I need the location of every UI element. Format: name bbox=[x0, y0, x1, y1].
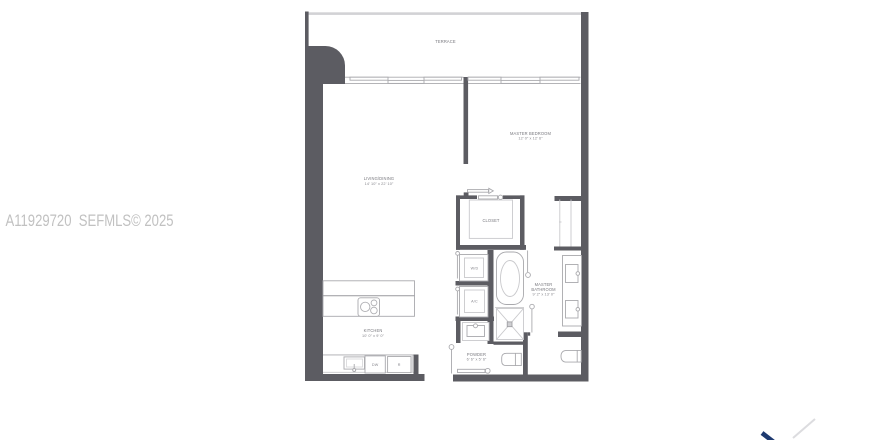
svg-text:A11929720 SEFMLS© 2025: A11929720 SEFMLS© 2025 bbox=[6, 211, 174, 230]
svg-text:10’ 0” x 9’ 0”: 10’ 0” x 9’ 0” bbox=[362, 334, 385, 338]
svg-text:POWDER: POWDER bbox=[467, 352, 486, 357]
svg-text:MASTER BEDROOM: MASTER BEDROOM bbox=[510, 131, 551, 136]
svg-text:W/D: W/D bbox=[471, 267, 479, 271]
svg-text:KITCHEN: KITCHEN bbox=[364, 328, 383, 333]
svg-text:9’ 2” x 13’ 0”: 9’ 2” x 13’ 0” bbox=[532, 292, 555, 296]
svg-text:BATHROOM: BATHROOM bbox=[531, 287, 556, 292]
svg-text:6’ 6” x 5’ 6”: 6’ 6” x 5’ 6” bbox=[467, 357, 487, 361]
svg-text:12’ 0” x 12’ 6”: 12’ 0” x 12’ 6” bbox=[518, 137, 543, 141]
svg-text:R: R bbox=[398, 363, 401, 367]
svg-text:LIVING/DINING: LIVING/DINING bbox=[364, 176, 394, 181]
svg-text:CLOSET: CLOSET bbox=[482, 218, 499, 223]
svg-text:DW: DW bbox=[372, 363, 379, 367]
svg-text:A/C: A/C bbox=[471, 300, 478, 304]
svg-text:14’ 10” x 22’ 10”: 14’ 10” x 22’ 10” bbox=[365, 182, 394, 186]
svg-text:TERRACE: TERRACE bbox=[435, 39, 456, 44]
